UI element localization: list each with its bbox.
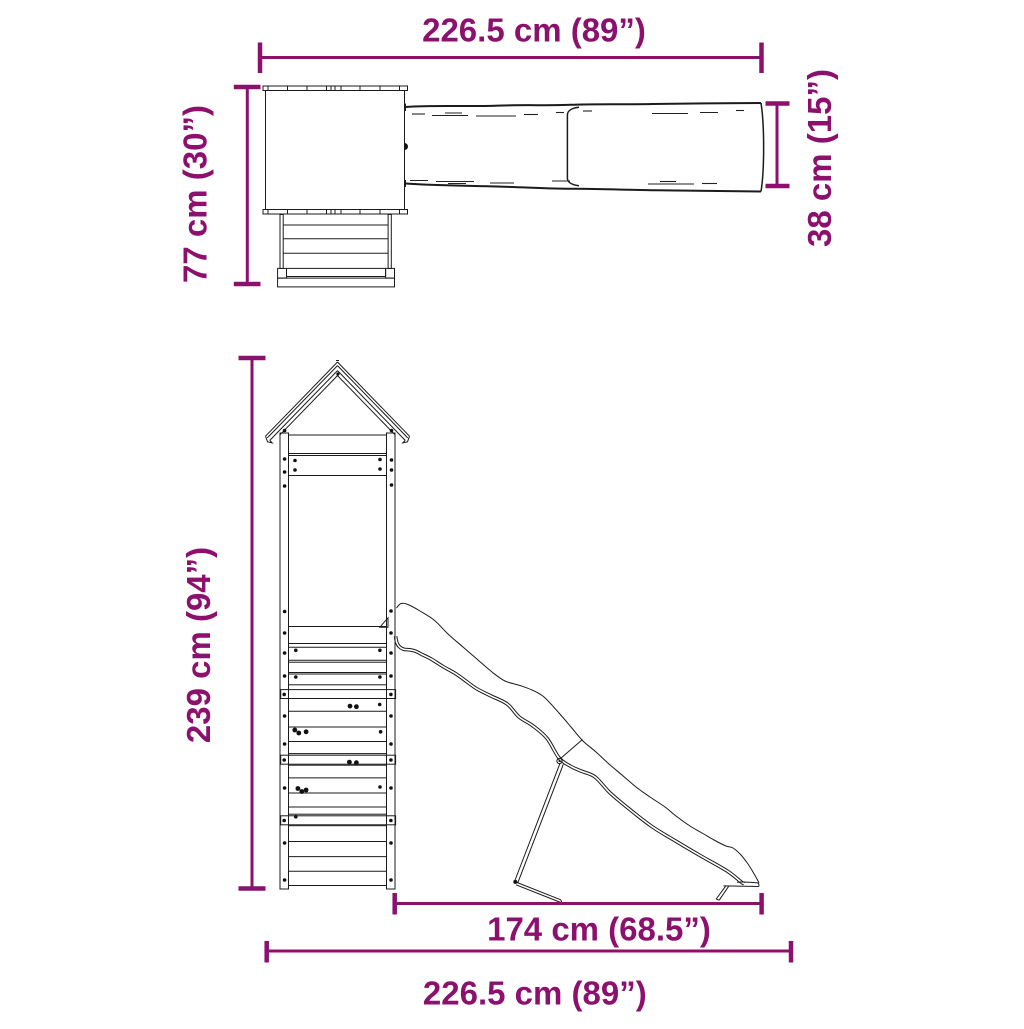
svg-text:226.5 cm (89”): 226.5 cm (89”) xyxy=(423,974,647,1011)
svg-text:174 cm (68.5”): 174 cm (68.5”) xyxy=(487,911,711,948)
svg-text:226.5 cm (89”): 226.5 cm (89”) xyxy=(422,12,646,49)
svg-text:239 cm (94”): 239 cm (94”) xyxy=(180,547,217,743)
svg-text:77 cm (30”): 77 cm (30”) xyxy=(177,105,214,283)
svg-text:38 cm (15”): 38 cm (15”) xyxy=(801,69,838,247)
